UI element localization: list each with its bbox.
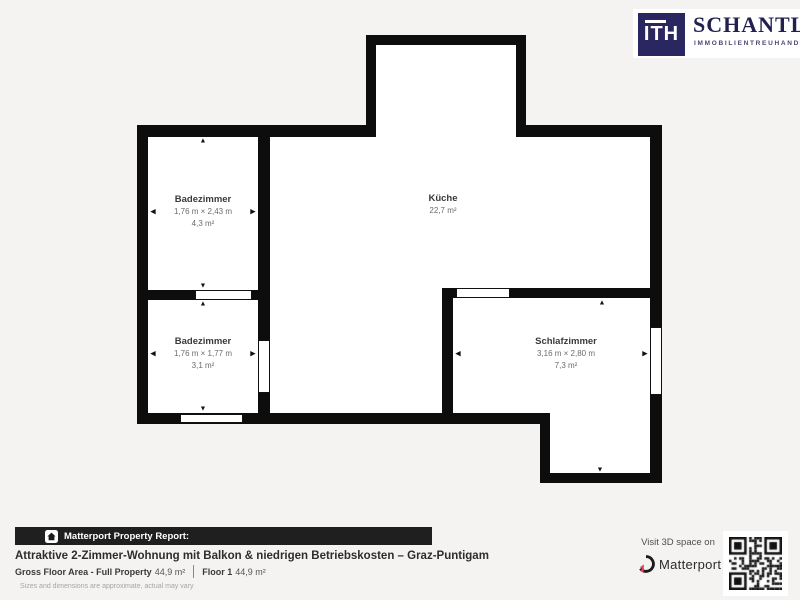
dimension-arrow-right-icon xyxy=(250,351,255,358)
wall xyxy=(137,125,148,424)
gross-floor-area-value: 44,9 m² xyxy=(155,567,186,577)
wall xyxy=(366,35,376,137)
window-badezimmer2 xyxy=(180,414,243,423)
room-area: 22,7 m² xyxy=(428,205,457,217)
dimension-arrow-left-icon xyxy=(150,209,155,216)
floor-label: Floor 1 xyxy=(202,567,232,577)
room-area: 7,3 m² xyxy=(535,360,597,372)
disclaimer-text: Sizes and dimensions are approximate, ac… xyxy=(20,583,194,590)
room-label-badezimmer-1: Badezimmer 1,76 m × 2,43 m 4,3 m² xyxy=(174,193,232,229)
room-label-kueche: Küche 22,7 m² xyxy=(428,192,457,217)
dimension-arrow-up-icon xyxy=(599,300,606,307)
room-dimensions: 1,76 m × 1,77 m xyxy=(174,348,232,360)
matterport-logo: Matterport xyxy=(637,555,721,573)
wall xyxy=(366,35,526,45)
room-label-schlafzimmer: Schlafzimmer 3,16 m × 2,80 m 7,3 m² xyxy=(535,335,597,371)
room-label-badezimmer-2: Badezimmer 1,76 m × 1,77 m 3,1 m² xyxy=(174,335,232,371)
door-badezimmer2 xyxy=(258,340,270,393)
qr-code xyxy=(723,531,788,596)
matterport-icon xyxy=(637,555,655,573)
room-area: 3,1 m² xyxy=(174,360,232,372)
wall xyxy=(516,125,662,137)
dimension-arrow-up-icon xyxy=(200,301,207,308)
visit-3d-text: Visit 3D space on xyxy=(638,537,718,548)
separator xyxy=(193,565,194,578)
room-name: Küche xyxy=(428,192,457,205)
qr-code-canvas xyxy=(729,537,782,590)
floor-plan: Badezimmer 1,76 m × 2,43 m 4,3 m² Badezi… xyxy=(0,0,800,600)
room-name: Schlafzimmer xyxy=(535,335,597,348)
wall xyxy=(540,473,662,483)
door-schlafzimmer xyxy=(456,288,510,298)
dimension-arrow-right-icon xyxy=(250,209,255,216)
wall xyxy=(650,125,662,483)
kueche-protrusion-interior xyxy=(376,45,516,140)
schlafzimmer-extension-interior xyxy=(550,413,650,473)
door-badezimmer-divider xyxy=(195,290,252,300)
room-name: Badezimmer xyxy=(174,335,232,348)
room-dimensions: 3,16 m × 2,80 m xyxy=(535,348,597,360)
matterport-report-bar: Matterport Property Report: xyxy=(15,527,432,545)
area-summary: Gross Floor Area - Full Property 44,9 m²… xyxy=(15,565,266,578)
wall xyxy=(137,125,376,137)
room-area: 4,3 m² xyxy=(174,218,232,230)
dimension-arrow-right-icon xyxy=(642,351,647,358)
dimension-arrow-down-icon xyxy=(200,283,207,290)
dimension-arrow-down-icon xyxy=(597,467,604,474)
wall xyxy=(442,288,453,424)
dimension-arrow-up-icon xyxy=(200,138,207,145)
window-schlafzimmer xyxy=(650,327,662,395)
dimension-arrow-down-icon xyxy=(200,406,207,413)
wall xyxy=(516,35,526,137)
dimension-arrow-left-icon xyxy=(150,351,155,358)
matterport-wordmark: Matterport xyxy=(659,557,721,572)
room-dimensions: 1,76 m × 2,43 m xyxy=(174,206,232,218)
main-interior xyxy=(148,137,650,413)
dimension-arrow-left-icon xyxy=(455,351,460,358)
gross-floor-area-label: Gross Floor Area - Full Property xyxy=(15,567,152,577)
house-icon xyxy=(45,530,58,543)
report-bar-label: Matterport Property Report: xyxy=(64,531,189,542)
property-title: Attraktive 2-Zimmer-Wohnung mit Balkon &… xyxy=(15,550,489,562)
room-name: Badezimmer xyxy=(174,193,232,206)
floor-value: 44,9 m² xyxy=(235,567,266,577)
